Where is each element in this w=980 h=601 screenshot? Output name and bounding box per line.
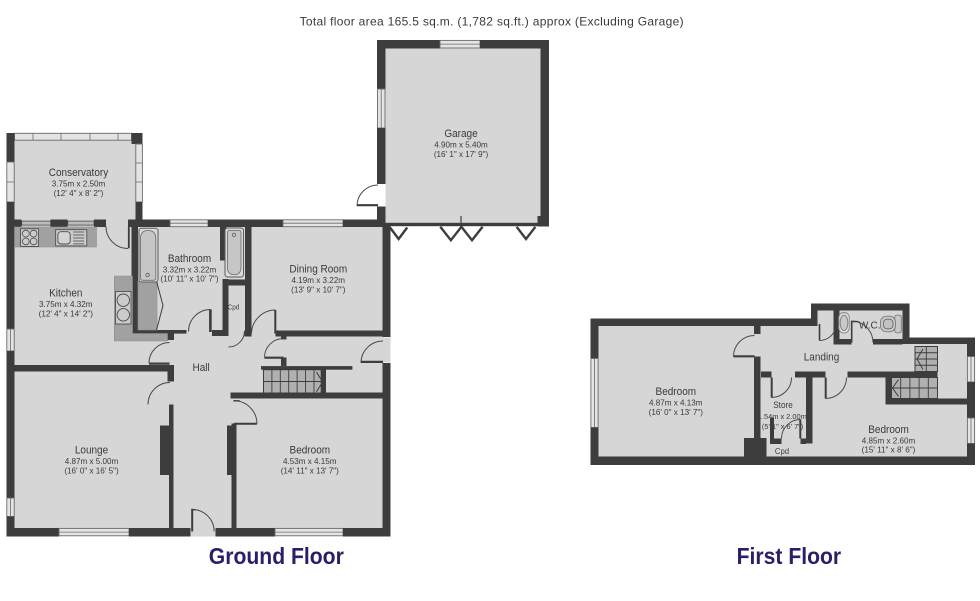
svg-text:3.75m x 4.32m: 3.75m x 4.32m (39, 300, 93, 309)
svg-text:Garage: Garage (444, 128, 477, 141)
svg-text:4.53m x 4.15m: 4.53m x 4.15m (283, 457, 337, 466)
svg-text:(5' 1" x 6' 7"): (5' 1" x 6' 7") (762, 422, 803, 431)
svg-text:4.90m x 5.40m: 4.90m x 5.40m (434, 141, 488, 150)
svg-text:Store: Store (773, 399, 793, 409)
svg-text:4.87m x 5.00m: 4.87m x 5.00m (65, 457, 119, 466)
svg-text:Bathroom: Bathroom (168, 252, 212, 265)
svg-text:(12' 4" x 8' 2"): (12' 4" x 8' 2") (54, 189, 104, 198)
svg-text:(13' 9" x 10' 7"): (13' 9" x 10' 7") (291, 285, 346, 294)
svg-text:(14' 11" x 13' 7"): (14' 11" x 13' 7") (281, 467, 339, 476)
svg-text:Kitchen: Kitchen (49, 287, 82, 300)
svg-text:(16' 0" x 13' 7"): (16' 0" x 13' 7") (649, 408, 704, 417)
svg-text:Ground Floor: Ground Floor (209, 543, 344, 569)
svg-text:Dining Room: Dining Room (289, 263, 347, 276)
svg-text:(16' 1" x 17' 9"): (16' 1" x 17' 9") (434, 150, 489, 159)
svg-text:3.32m x 3.22m: 3.32m x 3.22m (163, 265, 217, 274)
svg-text:Hall: Hall (192, 361, 209, 374)
svg-text:Cpd: Cpd (228, 304, 240, 311)
svg-text:4.19m x 3.22m: 4.19m x 3.22m (292, 276, 346, 285)
svg-text:Total floor area 165.5 sq.m. (: Total floor area 165.5 sq.m. (1,782 sq.f… (300, 15, 684, 29)
svg-text:1.54m x 2.00m: 1.54m x 2.00m (758, 412, 807, 421)
svg-text:Bedroom: Bedroom (656, 386, 697, 399)
svg-text:Bedroom: Bedroom (290, 444, 331, 457)
svg-text:(15' 11" x 8' 6"): (15' 11" x 8' 6") (862, 446, 916, 455)
svg-text:W.C.: W.C. (859, 321, 881, 332)
svg-text:(12' 4" x 14' 2"): (12' 4" x 14' 2") (39, 309, 94, 318)
svg-text:Bedroom: Bedroom (868, 423, 909, 436)
svg-text:4.87m x 4.13m: 4.87m x 4.13m (649, 399, 703, 408)
svg-text:Landing: Landing (804, 351, 840, 364)
svg-text:(10' 11" x 10' 7"): (10' 11" x 10' 7") (160, 275, 218, 284)
svg-text:Lounge: Lounge (75, 444, 109, 457)
svg-text:First Floor: First Floor (737, 543, 842, 569)
svg-text:Cpd: Cpd (775, 447, 789, 456)
svg-text:(16' 0" x 16' 5"): (16' 0" x 16' 5") (64, 467, 119, 476)
svg-text:4.85m x 2.60m: 4.85m x 2.60m (862, 436, 916, 445)
svg-text:Conservatory: Conservatory (49, 167, 109, 180)
svg-text:3.75m x 2.50m: 3.75m x 2.50m (52, 180, 106, 189)
